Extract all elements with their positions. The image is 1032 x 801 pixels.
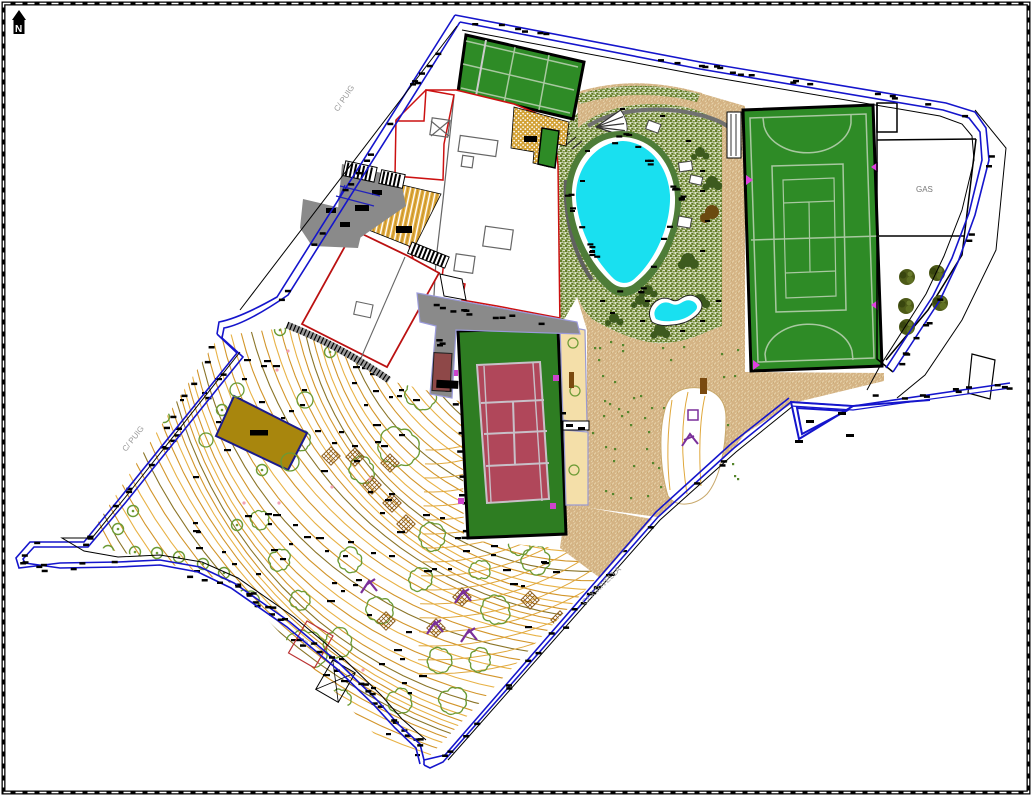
svg-text:N: N [15,24,22,35]
svg-text:GAS: GAS [916,185,933,194]
